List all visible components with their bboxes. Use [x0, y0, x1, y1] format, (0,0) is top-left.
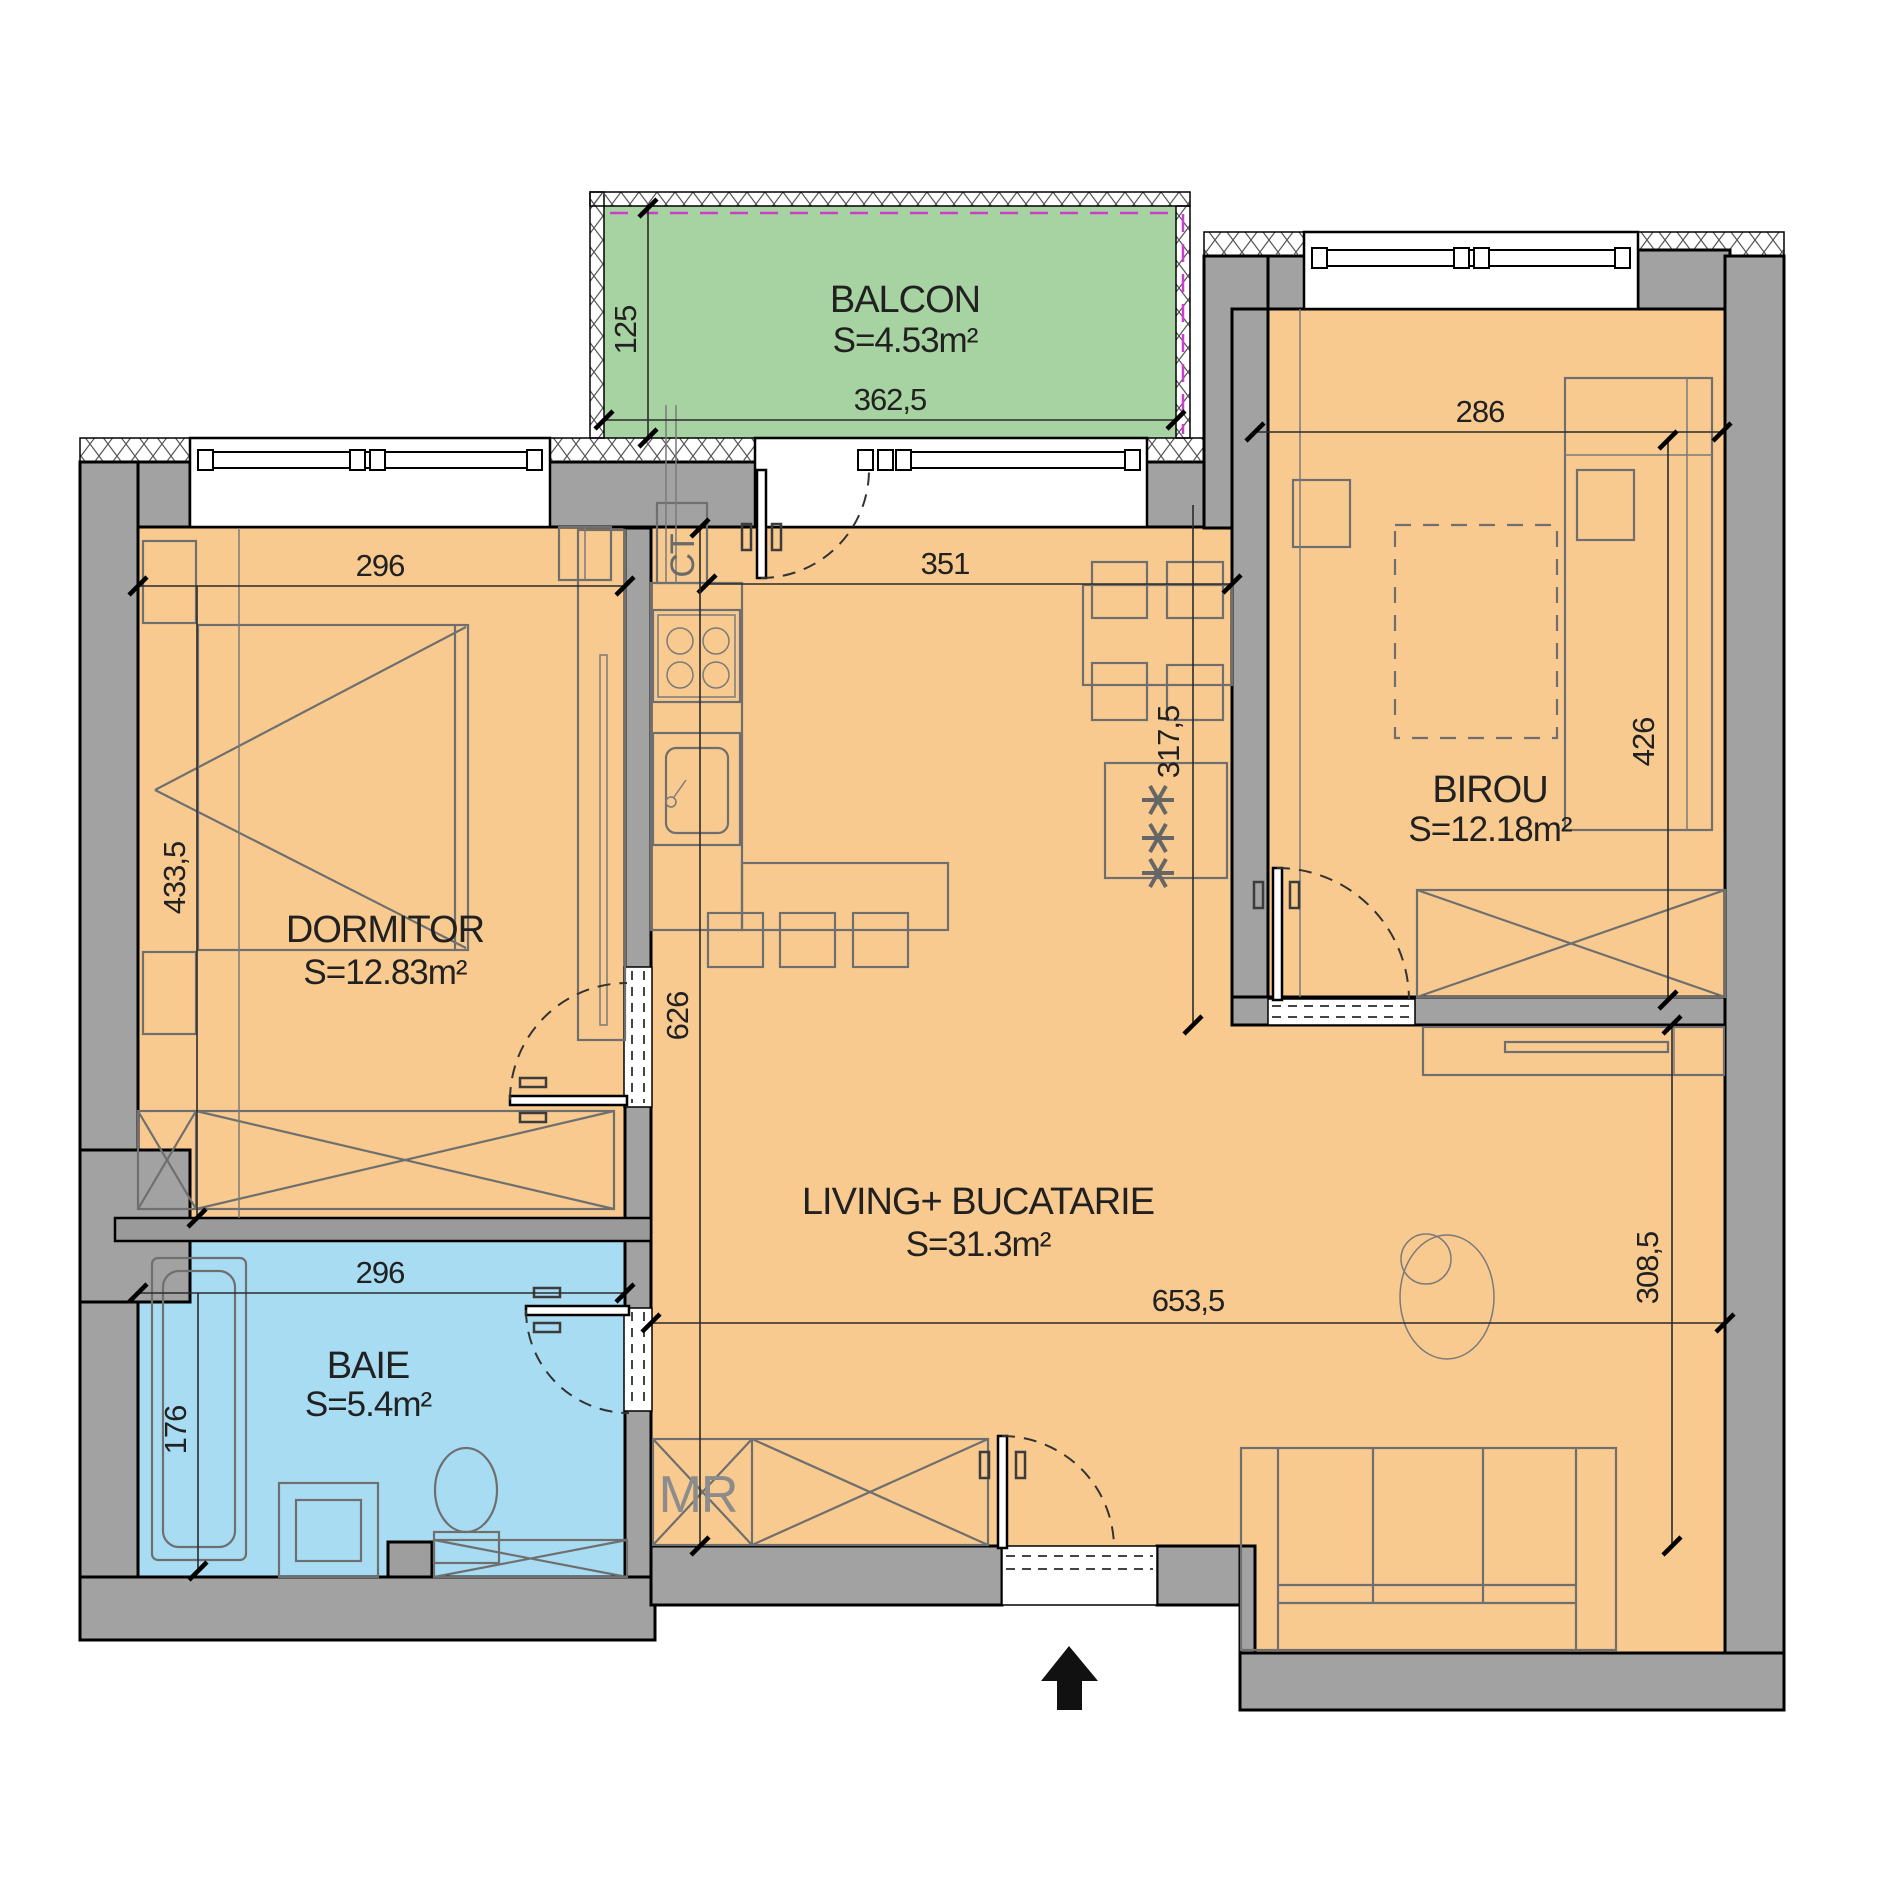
room-label-balcon: BALCON: [830, 279, 980, 321]
room-area-dormitor: S=12.83m²: [303, 953, 467, 992]
room-area-birou: S=12.18m²: [1408, 810, 1572, 849]
bottom-wall-mid-left: [651, 1546, 1002, 1605]
bottom-step-wall: [1240, 1546, 1255, 1653]
corner-column-ne: [1638, 250, 1730, 309]
room-area-living: S=31.3m²: [906, 1225, 1051, 1264]
bedroom-door-opening: [624, 967, 652, 1107]
floor-plan-page: 125 362,5 296 433,5 296 176 351 317,5 62…: [0, 0, 1880, 1880]
dimension-label-living-depth: 626: [660, 992, 695, 1041]
room-label-baie: BAIE: [327, 1345, 410, 1387]
dimension-label-baie-depth: 176: [158, 1406, 193, 1455]
dimension-label-balcon-width: 362,5: [854, 382, 927, 417]
bedroom-window: [190, 438, 550, 527]
room-label-birou: BIROU: [1432, 769, 1547, 811]
dimension-label-kitchen-depth: 317,5: [1151, 706, 1186, 779]
balcony-door-window: [755, 438, 1147, 527]
dimension-label-birou-depth: 426: [1626, 718, 1661, 767]
left-exterior-wall: [80, 462, 138, 1602]
dimension-label-living-width: 653,5: [1152, 1283, 1225, 1318]
entrance-arrow-icon: [1041, 1646, 1098, 1710]
window-jamb-block: [138, 462, 190, 527]
room-label-dormitor: DORMITOR: [286, 909, 484, 951]
bottom-wall-right: [1240, 1653, 1784, 1710]
room-area-baie: S=5.4m²: [305, 1385, 432, 1424]
dimension-label-living-right-depth: 308,5: [1630, 1232, 1665, 1305]
office-window: [1304, 232, 1638, 309]
dimension-label-kitchen-width: 351: [921, 546, 970, 581]
annotation-boiler: CT: [664, 534, 702, 578]
room-area-balcon: S=4.53m²: [833, 321, 978, 360]
dimension-label-dormitor-depth: 433,5: [157, 842, 192, 915]
right-exterior-wall: [1725, 256, 1784, 1653]
entrance-door-opening: [1002, 1546, 1157, 1605]
dimension-label-balcon-depth: 125: [608, 306, 643, 355]
dimension-label-birou-width: 286: [1456, 394, 1505, 429]
plumbing-shaft: [388, 1542, 432, 1577]
balcony-wall-left: [590, 192, 604, 438]
dimension-label-baie-width: 296: [356, 1255, 405, 1290]
annotation-washer: MR: [659, 1466, 738, 1524]
balcony-wall-top: [590, 192, 1190, 206]
office-door-opening: [1268, 999, 1415, 1025]
floor-plan-drawing: 125 362,5 296 433,5 296 176 351 317,5 62…: [0, 0, 1880, 1880]
dimension-label-dormitor-width: 296: [356, 548, 405, 583]
bottom-wall-left: [80, 1577, 655, 1640]
room-label-living: LIVING+ BUCATARIE: [802, 1181, 1154, 1223]
